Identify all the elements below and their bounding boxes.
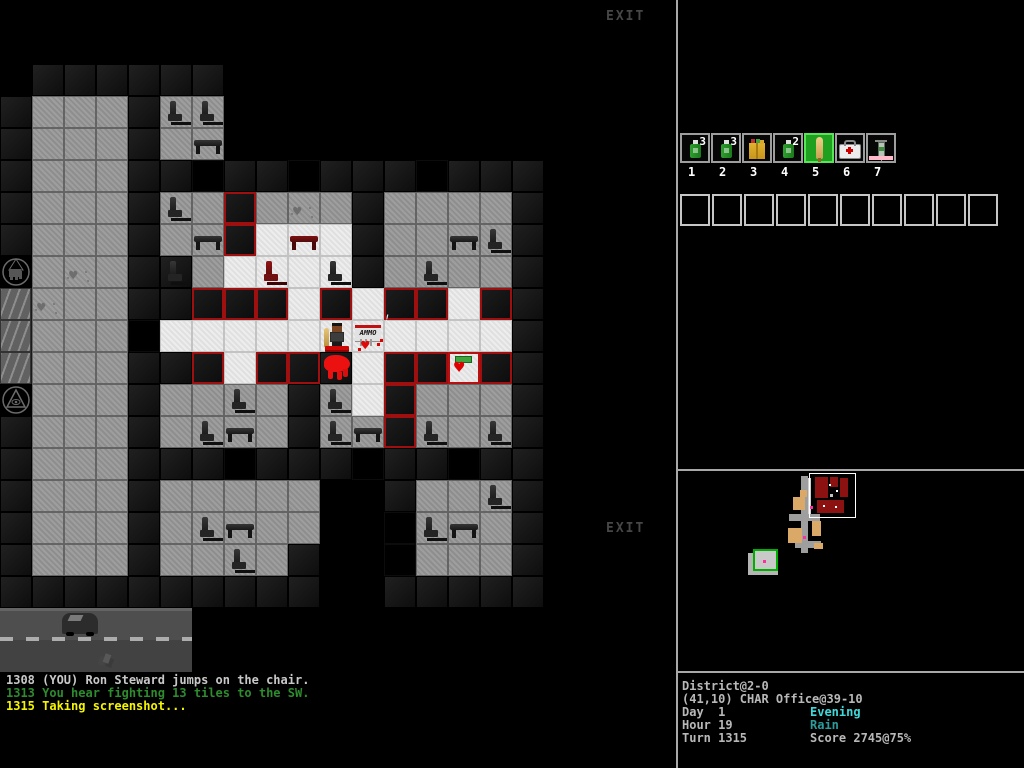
map-tile: [0, 416, 32, 448]
map-tile: [352, 224, 384, 256]
inventory-slot-number: 2: [719, 165, 726, 179]
map-tile: [384, 512, 416, 544]
map-tile: [192, 64, 224, 96]
map-tile: [288, 544, 320, 576]
map-tile: [224, 480, 256, 512]
map-tile: [320, 224, 352, 256]
fluff-sprite: ♥: [37, 301, 59, 319]
chair-sprite: [488, 229, 503, 252]
map-tile: [0, 96, 32, 128]
map-tile: [160, 64, 192, 96]
map-tile: [128, 192, 160, 224]
map-tile: [96, 64, 128, 96]
minimap-frame: [809, 473, 856, 518]
map-tile: [224, 320, 256, 352]
map-tile: [192, 352, 224, 384]
map-tile: [256, 192, 288, 224]
chair-sprite: [200, 421, 215, 444]
map-tile: [96, 512, 128, 544]
minimap-shape: [814, 543, 823, 549]
map-tile: [352, 256, 384, 288]
map-tile: [288, 576, 320, 608]
log-line: 1313 You hear fighting 13 tiles to the S…: [6, 686, 309, 700]
map-tile: [256, 320, 288, 352]
map-tile: [32, 576, 64, 608]
medkit-item-icon: [839, 144, 861, 159]
map-tile: [160, 608, 192, 640]
map-tile: [32, 96, 64, 128]
map-tile: [288, 256, 320, 288]
map-tile: [128, 512, 160, 544]
eye-icon: [0, 384, 32, 416]
syringe-item-icon: [878, 142, 885, 157]
table-sprite: [226, 524, 254, 539]
table-sprite: [194, 236, 222, 251]
table-sprite: [354, 428, 382, 443]
map-tile: [416, 480, 448, 512]
game-window: ♥♥♥♥AMMO!!♥ EXIT EXIT 1308 (YOU) Ron Ste…: [0, 0, 1024, 768]
map-tile: [416, 448, 448, 480]
map-tile: [480, 448, 512, 480]
map-grid[interactable]: ♥♥♥♥AMMO!!♥: [0, 0, 544, 672]
inventory-slot-4[interactable]: 2: [773, 133, 803, 163]
table-sprite: [450, 524, 478, 539]
map-tile: [160, 288, 192, 320]
map-tile: [64, 224, 96, 256]
map-tile: [128, 160, 160, 192]
ground-slots: [680, 194, 1024, 228]
map-tile: [416, 320, 448, 352]
map-tile: [416, 224, 448, 256]
inventory-slot-number: 5: [812, 165, 819, 179]
map-tile: [0, 224, 32, 256]
map-tile: [352, 192, 384, 224]
map-tile: [448, 448, 480, 480]
map-tile: [0, 128, 32, 160]
map-tile: [512, 256, 544, 288]
map-tile: [0, 480, 32, 512]
minimap-shape: [763, 560, 766, 563]
map-tile: [512, 480, 544, 512]
map-tile: [256, 544, 288, 576]
chair-sprite: [168, 261, 183, 284]
map-tile: [384, 256, 416, 288]
map-tile: [416, 352, 448, 384]
status-left: Day 1: [682, 705, 725, 719]
map-tile: [384, 544, 416, 576]
map-tile: [64, 416, 96, 448]
chair-sprite: [200, 101, 215, 124]
map-tile: [64, 448, 96, 480]
map-tile: [480, 288, 512, 320]
red-table-sprite: [290, 236, 318, 251]
map-tile: [96, 160, 128, 192]
map-tile: [64, 160, 96, 192]
map-tile: [224, 256, 256, 288]
map-tile: [128, 608, 160, 640]
ground-slot[interactable]: [712, 194, 742, 226]
item-durability-bar: [869, 156, 893, 160]
map-tile: [32, 128, 64, 160]
map-tile: [128, 320, 160, 352]
log-line: 1315 Taking screenshot...: [6, 699, 187, 713]
map-tile: [192, 160, 224, 192]
status-right: Evening: [810, 705, 861, 719]
map-tile: [96, 544, 128, 576]
map-tile: [128, 96, 160, 128]
status-right: Score 2745@75%: [810, 731, 911, 745]
map-tile: [96, 128, 128, 160]
map-tile: [128, 256, 160, 288]
status-left: Hour 19: [682, 718, 733, 732]
map-tile: [384, 384, 416, 416]
map-tile: [448, 288, 480, 320]
map-tile: [448, 320, 480, 352]
map-tile: [0, 576, 32, 608]
chair-sprite: [200, 517, 215, 540]
status-panel: District@2-0 (41,10) CHAR Office@39-10 D…: [678, 673, 1024, 768]
map-tile: [160, 480, 192, 512]
map-tile: [320, 192, 352, 224]
map-tile: [128, 384, 160, 416]
inventory-slot-number: 4: [781, 165, 788, 179]
map-tile: [448, 544, 480, 576]
inventory-slot-number: 3: [750, 165, 757, 179]
chair-sprite: [424, 517, 439, 540]
minimap-divider: [678, 469, 1024, 471]
table-sprite: [194, 140, 222, 155]
chair-sprite: [168, 101, 183, 124]
map-tile: [224, 288, 256, 320]
map-tile: [96, 320, 128, 352]
map-tile: [160, 160, 192, 192]
inventory-slot-5[interactable]: [804, 133, 834, 163]
inventory-slot-number: 7: [874, 165, 881, 179]
map-tile: [128, 448, 160, 480]
map-tile: [160, 352, 192, 384]
map-tile: [64, 640, 96, 672]
player-sprite: [324, 322, 351, 352]
minimap-shape: [812, 521, 821, 536]
minimap-shape: [788, 528, 802, 543]
map-tile: [480, 256, 512, 288]
map-tile: [256, 448, 288, 480]
map-tile: [224, 576, 256, 608]
map-tile: [512, 512, 544, 544]
map-tile: [224, 160, 256, 192]
map-tile: [96, 416, 128, 448]
blood-pool-sprite: [324, 355, 350, 372]
map-tile: [128, 128, 160, 160]
map-tile: [480, 384, 512, 416]
inventory-slot-7[interactable]: [866, 133, 896, 163]
map-tile: [384, 448, 416, 480]
map-tile: [192, 576, 224, 608]
map-tile: [0, 320, 32, 352]
map-tile: [416, 288, 448, 320]
map-tile: [32, 192, 64, 224]
map-tile: [512, 320, 544, 352]
map-tile: [480, 512, 512, 544]
map-tile: [480, 576, 512, 608]
map-tile: [32, 320, 64, 352]
map-tile: [32, 352, 64, 384]
map-tile: [0, 608, 32, 640]
map-tile: [512, 192, 544, 224]
map-tile: [32, 256, 64, 288]
status-position: (41,10) CHAR Office@39-10: [682, 692, 863, 706]
map-tile: [256, 480, 288, 512]
ground-slot[interactable]: [968, 194, 998, 226]
map-tile: [128, 576, 160, 608]
chair-sprite: [424, 421, 439, 444]
map-tile: [160, 128, 192, 160]
statue-icon: [0, 256, 32, 288]
map-tile: [288, 480, 320, 512]
inventory-slots: 3132324567: [680, 133, 1024, 181]
map-tile: [224, 448, 256, 480]
table-sprite: [226, 428, 254, 443]
map-tile: [128, 64, 160, 96]
map-tile: [64, 128, 96, 160]
map-tile: [256, 384, 288, 416]
map-tile: [192, 448, 224, 480]
ammo-cart-sprite: AMMO!!♥: [354, 322, 384, 354]
map-tile: [448, 576, 480, 608]
map-tile: [160, 320, 192, 352]
ground-slot[interactable]: [936, 194, 966, 226]
inventory-slot-1[interactable]: 3: [680, 133, 710, 163]
map-tile: [96, 192, 128, 224]
side-panel: (YOU) Ron Steward, civilian HP1215STA333…: [678, 0, 1024, 768]
map-tile: [64, 288, 96, 320]
ground-slot[interactable]: [840, 194, 870, 226]
map-tile: [320, 288, 352, 320]
map-tile: [96, 448, 128, 480]
map-tile: [256, 512, 288, 544]
map-tile: [160, 416, 192, 448]
map-tile: [0, 160, 32, 192]
map-tile: [288, 384, 320, 416]
ground-slot[interactable]: [680, 194, 710, 226]
map-tile: [32, 544, 64, 576]
status-right: Rain: [810, 718, 839, 732]
fluff-sprite: ♥: [69, 269, 91, 287]
inventory-slot-3[interactable]: [742, 133, 772, 163]
map-tile: [512, 448, 544, 480]
map-tile: [0, 288, 32, 320]
map-tile: [256, 160, 288, 192]
map-tile: [32, 224, 64, 256]
status-left: Turn 1315: [682, 731, 747, 745]
map-tile: [32, 448, 64, 480]
map-tile: [128, 352, 160, 384]
map-tile: [384, 480, 416, 512]
chair-sprite: [328, 261, 343, 284]
item-count: 2: [792, 135, 799, 148]
map-tile: [64, 352, 96, 384]
ground-slot[interactable]: [776, 194, 806, 226]
map-tile: [64, 320, 96, 352]
map-tile: [448, 256, 480, 288]
chair-sprite: [328, 421, 343, 444]
map-tile: [0, 448, 32, 480]
map-tile: [96, 576, 128, 608]
map-tile: [448, 416, 480, 448]
map-tile: [64, 576, 96, 608]
message-log: 1308 (YOU) Ron Steward jumps on the chai…: [3, 672, 673, 768]
map-tile: [256, 576, 288, 608]
map-tile: [320, 160, 352, 192]
map-tile: [192, 544, 224, 576]
map-tile: [480, 320, 512, 352]
map-tile: [160, 544, 192, 576]
minimap-shape: [800, 490, 807, 497]
bag-item-icon: [749, 143, 765, 159]
car-sprite: [62, 613, 98, 634]
map-tile: [192, 384, 224, 416]
map-tile: [160, 576, 192, 608]
bat-item-icon: [816, 137, 823, 159]
map-tile: [160, 384, 192, 416]
map-tile: [224, 352, 256, 384]
map-tile: [160, 224, 192, 256]
red-chair-sprite: [264, 261, 279, 284]
inventory-slot-number: 1: [688, 165, 695, 179]
map-tile: [480, 544, 512, 576]
chair-sprite: [328, 389, 343, 412]
map-tile: [448, 192, 480, 224]
map-tile: [160, 640, 192, 672]
map-tile: [480, 352, 512, 384]
chair-sprite: [232, 389, 247, 412]
debris-sprite: [100, 653, 115, 666]
map-tile: [0, 544, 32, 576]
map-tile: [352, 160, 384, 192]
map-tile: [32, 64, 64, 96]
map-tile: [352, 352, 384, 384]
map-tile: [288, 512, 320, 544]
map-tile: [512, 416, 544, 448]
map-tile: [512, 224, 544, 256]
item-count: 3: [730, 135, 737, 148]
map-tile: [256, 352, 288, 384]
inventory-slot-2[interactable]: 3: [711, 133, 741, 163]
map-tile: [288, 416, 320, 448]
chair-sprite: [232, 549, 247, 572]
minimap-shape: [803, 536, 806, 539]
chair-sprite: [488, 421, 503, 444]
ground-slot[interactable]: [808, 194, 838, 226]
map-tile: [512, 352, 544, 384]
map-tile: [384, 160, 416, 192]
map-tile: [128, 480, 160, 512]
map-tile: [32, 160, 64, 192]
map-tile: [96, 224, 128, 256]
map-tile: [288, 352, 320, 384]
map-tile: [256, 224, 288, 256]
map-tile: [224, 224, 256, 256]
chair-sprite: [488, 485, 503, 508]
map-tile: [0, 512, 32, 544]
map-tile: [0, 640, 32, 672]
map-tile: [512, 288, 544, 320]
map-tile: [32, 640, 64, 672]
map-tile: [448, 160, 480, 192]
minimap: [678, 472, 1024, 669]
map-tile: [512, 160, 544, 192]
map-tile: [480, 192, 512, 224]
map-tile: [288, 448, 320, 480]
inventory-slot-6[interactable]: [835, 133, 865, 163]
map-tile: [512, 544, 544, 576]
map-area[interactable]: ♥♥♥♥AMMO!!♥ EXIT EXIT 1308 (YOU) Ron Ste…: [0, 0, 676, 768]
map-tile: [128, 544, 160, 576]
ground-slot[interactable]: [872, 194, 902, 226]
map-tile: [256, 288, 288, 320]
chair-sprite: [424, 261, 439, 284]
item-count: 3: [699, 135, 706, 148]
map-tile: [320, 448, 352, 480]
map-tile: [384, 192, 416, 224]
map-tile: [0, 192, 32, 224]
map-tile: [416, 384, 448, 416]
map-tile: [128, 224, 160, 256]
map-tile: [384, 320, 416, 352]
map-tile: [224, 192, 256, 224]
exit-label-top: EXIT: [606, 9, 645, 24]
map-tile: [32, 480, 64, 512]
heart-item-sprite: ♥: [452, 356, 476, 380]
fluff-sprite: ♥: [293, 205, 315, 223]
map-tile: [448, 480, 480, 512]
map-tile: [128, 288, 160, 320]
ground-slot[interactable]: [904, 194, 934, 226]
status-location: District@2-0: [682, 679, 769, 693]
log-line: 1308 (YOU) Ron Steward jumps on the chai…: [6, 673, 309, 687]
map-tile: [192, 192, 224, 224]
map-tile: [96, 96, 128, 128]
map-tile: [416, 192, 448, 224]
map-tile: [32, 416, 64, 448]
table-sprite: [450, 236, 478, 251]
map-tile: [96, 384, 128, 416]
map-tile: [192, 288, 224, 320]
map-tile: [192, 480, 224, 512]
map-tile: [384, 352, 416, 384]
ground-slot[interactable]: [744, 194, 774, 226]
map-tile: [352, 448, 384, 480]
map-tile: [192, 256, 224, 288]
map-tile: [416, 544, 448, 576]
map-tile: [352, 384, 384, 416]
map-tile: [288, 320, 320, 352]
map-tile: [64, 512, 96, 544]
map-tile: [384, 416, 416, 448]
map-tile: [96, 288, 128, 320]
minimap-shape: [793, 497, 805, 510]
map-tile: [96, 256, 128, 288]
map-tile: [192, 320, 224, 352]
map-tile: [64, 544, 96, 576]
inventory-slot-number: 6: [843, 165, 850, 179]
map-tile: [512, 576, 544, 608]
map-tile: [128, 640, 160, 672]
map-tile: [96, 608, 128, 640]
map-tile: [96, 352, 128, 384]
map-tile: [32, 608, 64, 640]
map-tile: [64, 192, 96, 224]
